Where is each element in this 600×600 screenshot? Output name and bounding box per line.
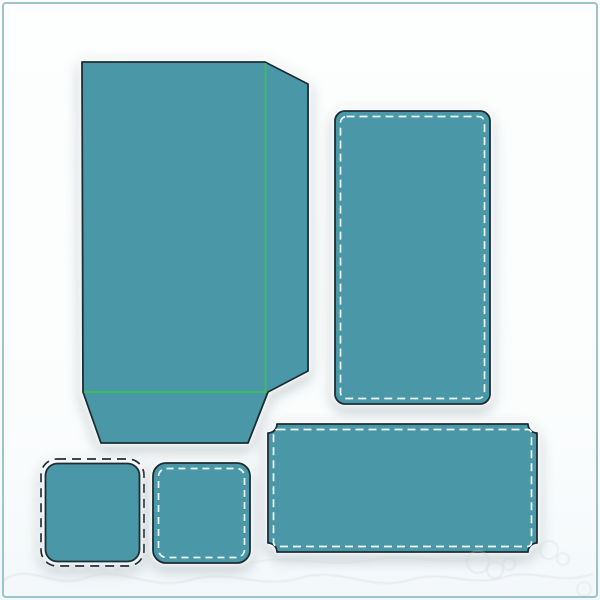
ticket-piece [268, 424, 537, 552]
watermark-doodle-circle [540, 541, 558, 559]
envelope-cut-outline [82, 62, 308, 443]
watermark-doodle-circle [503, 558, 515, 570]
watermark-doodle-circle [487, 562, 503, 578]
ticket-cut-outline [268, 424, 537, 552]
template-preview-artboard [0, 0, 600, 600]
watermark-flourish-stroke-2 [250, 557, 470, 563]
envelope-piece [82, 62, 308, 443]
watermark-doodle-circle [557, 553, 569, 565]
watermark-flourish-stroke [4, 574, 592, 583]
small-square-cut-outline [46, 464, 140, 562]
small-square-cut-piece [41, 459, 144, 566]
small-square-stitched-cut-outline [153, 463, 250, 563]
watermark-doodle-circle [577, 582, 591, 596]
panel-cut-outline [335, 111, 490, 404]
small-square-stitched-piece [153, 463, 250, 563]
watermark-doodle-circle [467, 551, 489, 573]
stitched-panel-piece [335, 111, 490, 404]
template-canvas [0, 0, 600, 600]
